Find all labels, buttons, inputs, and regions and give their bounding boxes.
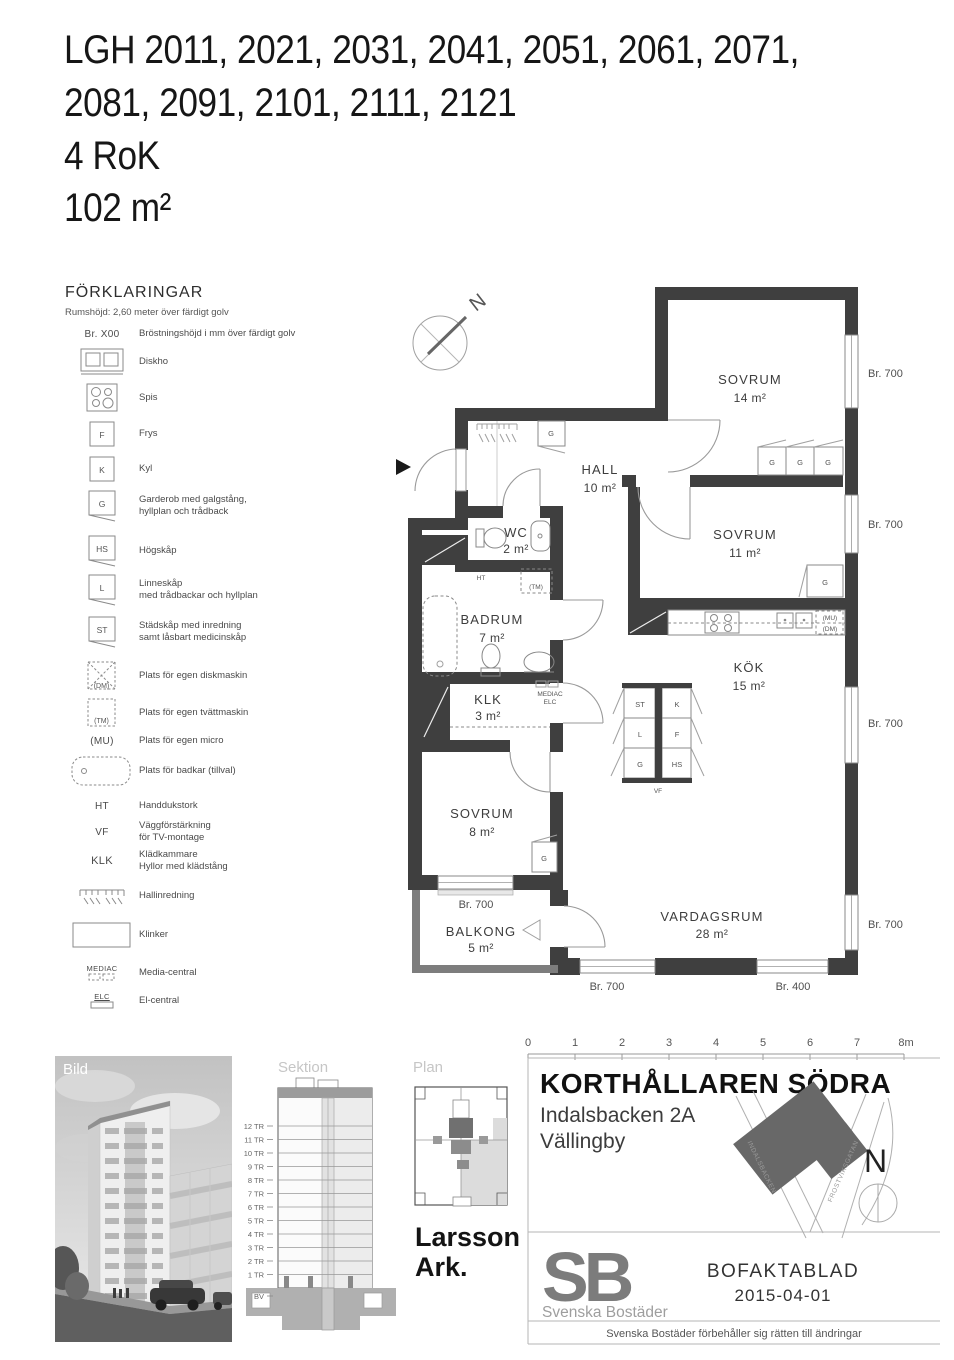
bathtub-icon <box>423 596 457 676</box>
logo-name: Svenska Bostäder <box>542 1304 668 1321</box>
doc-type: BOFAKTABLAD <box>707 1261 859 1282</box>
klk-symbol: KLK <box>65 855 139 867</box>
wardrobes: G G G G G G <box>532 421 843 872</box>
bedroom14-door <box>668 420 720 472</box>
svg-text:(TM): (TM) <box>94 718 109 725</box>
svg-text:4 TR: 4 TR <box>248 1230 265 1239</box>
legend-item-diskho: Diskho <box>65 348 400 376</box>
svg-text:VF: VF <box>654 788 662 795</box>
legend-item-diskmaskin: (DM) Plats för egen diskmaskin <box>65 660 400 692</box>
bofaktablad-page: LGH 2011, 2021, 2031, 2041, 2051, 2061, … <box>0 0 954 1360</box>
svg-text:6: 6 <box>807 1037 813 1049</box>
hogskap-icon: HS <box>87 534 117 568</box>
svg-text:Br. 700: Br. 700 <box>459 899 494 911</box>
svg-text:5: 5 <box>760 1037 766 1049</box>
ht-symbol: HT <box>65 801 139 812</box>
hallinredning-icon <box>78 886 126 906</box>
vf-symbol: VF <box>65 827 139 838</box>
page-title: LGH 2011, 2021, 2031, 2041, 2051, 2061, … <box>64 24 799 235</box>
room-label-balkong: BALKONG <box>446 924 517 939</box>
spis-icon <box>86 383 118 413</box>
badkar-icon <box>70 755 134 787</box>
diskho-icon <box>80 348 124 376</box>
svg-text:2 TR: 2 TR <box>248 1257 265 1266</box>
legend-item-elcentral: ELC El-central <box>65 992 400 1010</box>
section-label: Sektion <box>278 1059 328 1076</box>
svg-text:ST: ST <box>635 700 645 709</box>
svg-text:N: N <box>864 1143 887 1179</box>
svg-text:12 TR: 12 TR <box>244 1122 265 1131</box>
svg-text:K: K <box>674 700 679 709</box>
section-drawing: Sektion 12 TR 11 TR 10 TR 9 TR 8 TR 7 TR <box>238 1056 403 1346</box>
doc-date: 2015-04-01 <box>735 1286 832 1305</box>
svg-text:ST: ST <box>97 625 108 635</box>
floor-labels: 12 TR 11 TR 10 TR 9 TR 8 TR 7 TR 6 TR 5 … <box>244 1122 273 1301</box>
svg-text:7 TR: 7 TR <box>248 1190 265 1199</box>
balcony-door <box>564 906 605 947</box>
mediac-icon <box>88 973 116 982</box>
svg-text:(TM): (TM) <box>529 584 543 591</box>
svg-text:G: G <box>797 458 803 467</box>
svg-text:5 m²: 5 m² <box>468 941 494 955</box>
legend-item-handdukstork: HT Handdukstork <box>65 800 400 812</box>
svg-text:10 TR: 10 TR <box>244 1149 265 1158</box>
title-rok: 4 RoK <box>64 130 799 183</box>
legend-item-badkar: Plats för badkar (tillval) <box>65 755 400 787</box>
svg-text:G: G <box>822 578 828 587</box>
closet-island: ST L G K F HS VF <box>611 683 704 795</box>
stadskap-icon: ST <box>87 615 117 649</box>
entrance-arrow-icon <box>396 459 411 475</box>
disclaimer: Svenska Bostäder förbehåller sig rätten … <box>606 1328 862 1340</box>
svg-text:HT: HT <box>477 575 486 582</box>
title-line-1: LGH 2011, 2021, 2031, 2041, 2051, 2061, … <box>64 24 799 77</box>
svg-text:9 TR: 9 TR <box>248 1163 265 1172</box>
toilet-icon <box>476 529 484 547</box>
elc-symbol: ELC <box>94 992 110 1001</box>
diskmaskin-icon: (DM) <box>86 660 118 692</box>
legend-item-spis: Spis <box>65 383 400 413</box>
svg-text:Br. 400: Br. 400 <box>776 981 811 993</box>
svg-text:2: 2 <box>619 1037 625 1049</box>
svg-text:11 TR: 11 TR <box>244 1136 264 1145</box>
room-labels: SOVRUM 14 m² SOVRUM 11 m² HALL 10 m² WC … <box>446 372 782 955</box>
svg-text:HS: HS <box>672 760 682 769</box>
room-label-sovrum8: SOVRUM <box>450 806 514 821</box>
svg-text:Br. 700: Br. 700 <box>868 368 903 380</box>
svg-text:4: 4 <box>713 1037 719 1049</box>
linneskap-icon: L <box>87 573 117 607</box>
legend-item-linneskap: L Linneskåp med trådbackar och hyllplan <box>65 573 400 607</box>
room-label-klk: KLK <box>474 692 502 707</box>
micro-symbol: (MU) <box>65 736 139 747</box>
svg-text:K: K <box>99 465 105 475</box>
legend-heading: FÖRKLARINGAR <box>65 284 203 302</box>
room-label-kok: KÖK <box>734 660 765 675</box>
scale-bar: 0 1 2 3 4 5 6 7 8m <box>525 1037 914 1060</box>
svg-text:G: G <box>825 458 831 467</box>
washbasin-icon <box>531 521 550 551</box>
site-map: INDALSBACKEN FROSTVIKSGATAN N <box>733 1081 897 1238</box>
svg-text:1 TR: 1 TR <box>248 1271 265 1280</box>
svg-text:MEDIAC: MEDIAC <box>537 691 563 698</box>
svg-text:N: N <box>466 290 491 316</box>
legend-item-vaggforstarkning: VF Väggförstärkning för TV-montage <box>65 820 400 845</box>
svg-text:Br. 700: Br. 700 <box>590 981 625 993</box>
klk-door <box>563 683 603 723</box>
plan-thumb-label: Plan <box>413 1059 443 1076</box>
toilet-icon <box>482 644 500 668</box>
legend-item-kyl: K Kyl <box>65 455 400 483</box>
mediac-symbol: MEDIAC <box>87 964 118 973</box>
svg-text:L: L <box>100 583 105 593</box>
room-label-hall: HALL <box>582 462 619 477</box>
legend-item-tvattmaskin: (TM) Plats för egen tvättmaskin <box>65 697 400 729</box>
legend-item-garderob: G Garderob med galgstång, hyllplan och t… <box>65 489 400 523</box>
svg-text:6 TR: 6 TR <box>248 1203 265 1212</box>
svg-text:(DM): (DM) <box>94 683 110 690</box>
elc-icon <box>90 1001 114 1010</box>
svg-text:3: 3 <box>666 1037 672 1049</box>
balcony-triangle-icon <box>523 920 540 940</box>
svg-text:1: 1 <box>572 1037 578 1049</box>
bathroom-door <box>563 600 603 640</box>
room-label-sovrum11: SOVRUM <box>713 527 777 542</box>
entry-door-arc <box>415 449 457 491</box>
legend-item-br: Br. X00 Bröstningshöjd i mm över färdigt… <box>65 328 400 340</box>
svg-text:14 m²: 14 m² <box>734 391 767 405</box>
svg-text:7 m²: 7 m² <box>479 631 505 645</box>
klinker-icon <box>72 922 132 948</box>
svg-text:3 m²: 3 m² <box>475 709 501 723</box>
wc-door <box>503 469 540 506</box>
legend-item-hallinredning: Hallinredning <box>65 886 400 906</box>
svg-text:15 m²: 15 m² <box>733 679 766 693</box>
room-label-badrum: BADRUM <box>461 612 524 627</box>
svg-text:8 m²: 8 m² <box>469 825 495 839</box>
br-symbol: Br. X00 <box>65 329 139 340</box>
svg-text:ELC: ELC <box>544 699 557 706</box>
architect-name: Larsson Ark. <box>415 1222 520 1282</box>
address-line-2: Vällingby <box>540 1130 626 1153</box>
legend-item-hogskap: HS Högskåp <box>65 534 400 568</box>
room-label-sovrum14: SOVRUM <box>718 372 782 387</box>
legend-item-frys: F Frys <box>65 420 400 448</box>
windows <box>438 335 858 973</box>
svg-text:0: 0 <box>525 1037 531 1049</box>
svg-text:11 m²: 11 m² <box>729 546 761 560</box>
svg-text:Br. 700: Br. 700 <box>868 919 903 931</box>
svg-text:L: L <box>638 730 642 739</box>
garderob-icon: G <box>87 489 117 523</box>
bedroom11-door <box>638 487 690 539</box>
svg-text:F: F <box>675 730 680 739</box>
tvattmaskin-icon: (TM) <box>86 697 118 729</box>
project-name: KORTHÅLLAREN SÖDRA <box>540 1068 891 1099</box>
legend-item-stadskap: ST Städskåp med inredning samt låsbart m… <box>65 615 400 649</box>
room-label-vardagsrum: VARDAGSRUM <box>660 909 763 924</box>
legend-item-klinker: Klinker <box>65 922 400 948</box>
svg-text:HS: HS <box>96 544 108 554</box>
svg-text:(DM): (DM) <box>823 626 837 633</box>
company-logo: SB Svenska Bostäder <box>542 1238 668 1321</box>
floor-plan: G G G G G G ST L G K F HS <box>390 275 954 1015</box>
frys-icon: F <box>88 420 116 448</box>
svg-text:Br. 700: Br. 700 <box>868 519 903 531</box>
washbasin-icon <box>524 652 554 672</box>
svg-text:3 TR: 3 TR <box>248 1244 265 1253</box>
legend-subheading: Rumshöjd: 2,60 meter över färdigt golv <box>65 307 229 318</box>
title-area: 102 m² <box>64 182 799 235</box>
building-photo: Bild <box>55 1056 232 1342</box>
legend-item-kladkammare: KLK Klädkammare Hyllor med klädstång <box>65 849 400 874</box>
svg-text:28 m²: 28 m² <box>696 927 729 941</box>
svg-text:F: F <box>99 430 104 440</box>
svg-text:8m: 8m <box>898 1037 913 1049</box>
svg-text:G: G <box>99 499 106 509</box>
kyl-icon: K <box>88 455 116 483</box>
photo-label: Bild <box>63 1061 88 1078</box>
svg-text:G: G <box>769 458 775 467</box>
bedroom8-door <box>510 752 550 792</box>
north-arrow-icon: N <box>413 290 490 370</box>
info-panel: 0 1 2 3 4 5 6 7 8m KORTHÅLLAREN SÖDRA In… <box>520 1030 954 1352</box>
svg-text:8 TR: 8 TR <box>248 1176 265 1185</box>
svg-text:(MU): (MU) <box>823 615 837 622</box>
svg-text:7: 7 <box>854 1037 860 1049</box>
svg-text:G: G <box>548 429 554 438</box>
kitchen-counter: (MU) (DM) <box>668 610 845 635</box>
legend-item-mediacentral: MEDIAC Media-central <box>65 964 400 982</box>
address-line-1: Indalsbacken 2A <box>540 1104 695 1127</box>
svg-text:G: G <box>541 854 547 863</box>
svg-text:5 TR: 5 TR <box>248 1217 265 1226</box>
svg-text:2 m²: 2 m² <box>503 542 529 556</box>
svg-text:Br. 700: Br. 700 <box>868 718 903 730</box>
entry-door-leaf <box>456 449 466 491</box>
room-label-wc: WC <box>504 525 528 540</box>
svg-text:10 m²: 10 m² <box>584 481 617 495</box>
svg-text:G: G <box>637 760 643 769</box>
title-line-2: 2081, 2091, 2101, 2111, 2121 <box>64 77 799 130</box>
svg-text:BV: BV <box>254 1292 264 1301</box>
legend-item-micro: (MU) Plats för egen micro <box>65 735 400 747</box>
